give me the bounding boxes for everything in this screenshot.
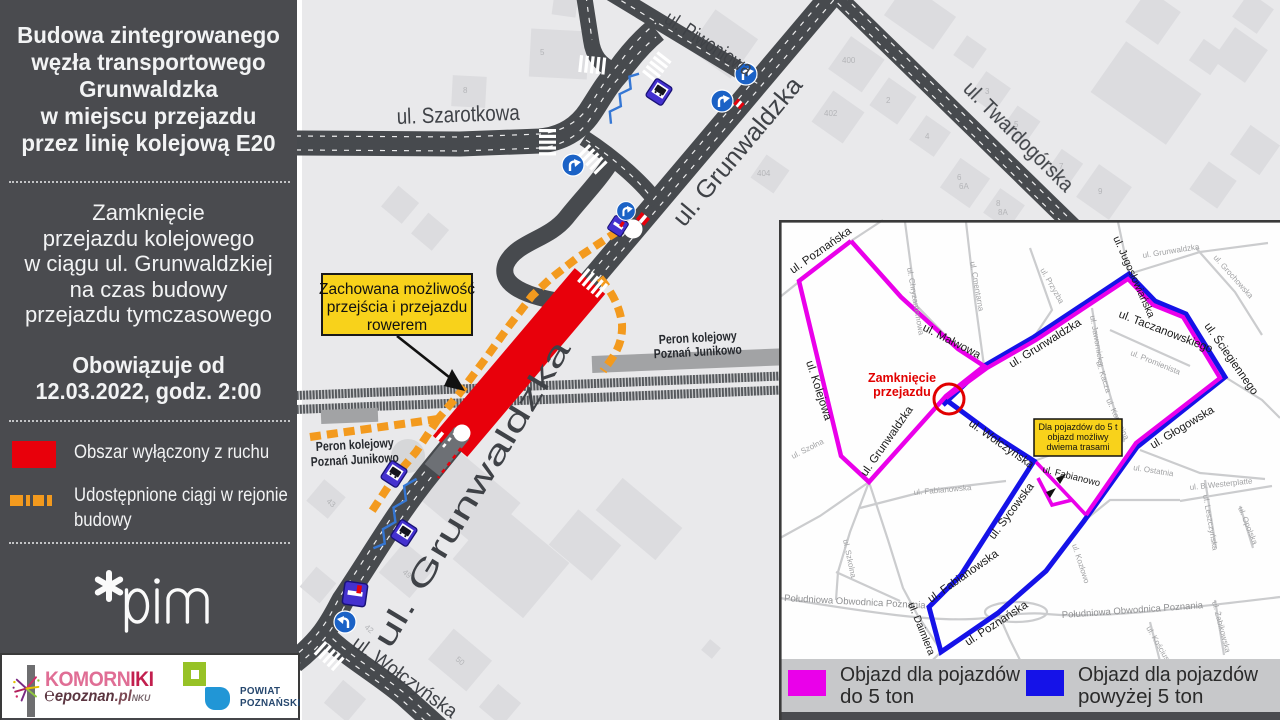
svg-text:dwiema trasami: dwiema trasami	[1046, 442, 1109, 452]
svg-text:Dla pojazdów do 5 t: Dla pojazdów do 5 t	[1038, 422, 1118, 432]
svg-text:rowerem: rowerem	[367, 317, 427, 334]
svg-text:9: 9	[1098, 187, 1103, 196]
svg-text:400: 400	[842, 56, 856, 65]
svg-text:6: 6	[957, 173, 962, 182]
svg-text:4: 4	[925, 132, 930, 141]
svg-text:Objazd dla pojazdów: Objazd dla pojazdów	[840, 663, 1020, 686]
svg-text:6A: 6A	[959, 182, 969, 191]
svg-text:404: 404	[757, 169, 771, 178]
svg-text:402: 402	[824, 109, 838, 118]
svg-text:Zachowana możliwość: Zachowana możliwość	[319, 281, 475, 298]
svg-text:przejścia i przejazdu: przejścia i przejazdu	[327, 299, 467, 316]
svg-text:5: 5	[540, 48, 545, 57]
svg-text:Objazd dla pojazdów: Objazd dla pojazdów	[1078, 663, 1258, 686]
svg-text:przejazdu: przejazdu	[873, 385, 931, 399]
svg-text:8: 8	[463, 86, 468, 95]
svg-text:powyżej 5 ton: powyżej 5 ton	[1078, 685, 1203, 708]
svg-text:objazd możliwy: objazd możliwy	[1047, 432, 1109, 442]
svg-text:2: 2	[886, 96, 891, 105]
svg-text:do 5 ton: do 5 ton	[840, 685, 914, 708]
svg-text:8A: 8A	[998, 208, 1008, 217]
svg-text:Zamknięcie: Zamknięcie	[868, 371, 936, 385]
svg-text:ul. Szarotkowa: ul. Szarotkowa	[396, 100, 520, 129]
svg-text:8: 8	[996, 199, 1001, 208]
